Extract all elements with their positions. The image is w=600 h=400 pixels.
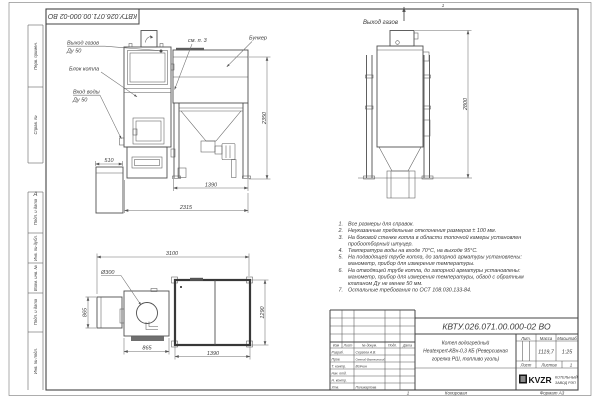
side-chimney — [390, 31, 414, 47]
frame-label-perv-primen: Перв. примен. — [33, 42, 38, 70]
boiler-chimney-stub — [141, 31, 157, 48]
note-text: Неуказанные предельные отклонения размер… — [348, 228, 496, 234]
note-text: манометр, прибор для измерения температу… — [348, 274, 524, 280]
conveyor-outlet — [201, 141, 215, 152]
note-num: 2. — [338, 228, 344, 234]
tb-name-line2: Heatexpert-КВн-0,3 КБ (Реверсивная — [423, 349, 508, 355]
plan-view: 3100 865 Ø300 865 1390 — [83, 251, 269, 360]
dim-1290: 1290 — [260, 305, 266, 318]
grate-strip — [131, 337, 164, 342]
tb-role: Нач. отд. — [332, 372, 347, 376]
zone-marker-a: А — [32, 192, 37, 198]
technical-notes: 1. Все размеры для справок. 2. Неуказанн… — [338, 222, 525, 294]
format-label: Формат А3 — [540, 391, 565, 396]
tb-person: Всячин — [356, 365, 367, 369]
note-num: 7. — [339, 288, 344, 294]
note-text: манометр, прибор для измерения температу… — [348, 261, 475, 267]
hopper-plan — [175, 280, 250, 345]
dim-865-bottom: 865 — [142, 346, 152, 352]
hopper-container — [173, 50, 248, 103]
note-text: На подводящей трубе котла, до запорной а… — [348, 254, 522, 261]
frame-label-podp-data-2: Подп. и дата — [33, 298, 38, 325]
label-see-note-3: см. п. 3 — [188, 38, 208, 44]
note-text: На отводящей трубе котла, до запорной ар… — [348, 267, 521, 274]
tb-role: Разраб. — [332, 351, 344, 355]
tb-person: Поликарпова — [356, 386, 377, 390]
side-view: Выход газов 2800 — [358, 7, 472, 198]
tb-name-line3: горелка РШ, топливо уголь) — [432, 357, 500, 363]
boiler-bottom-box — [127, 147, 167, 178]
dim-865-left: 865 — [83, 307, 89, 317]
boiler-upper-door — [128, 51, 168, 85]
tb-scale-value: 1:25 — [562, 350, 573, 356]
engineering-drawing: Перв. примен. Справ. № Подп. и дата Инв.… — [0, 0, 600, 400]
tb-col-podp: Подп. — [388, 343, 397, 347]
note-num: 1. — [339, 222, 344, 228]
note-text: клапаном Ду не менее 50 мм. — [348, 281, 423, 287]
tb-person: Омелой-Вережинский — [356, 358, 386, 362]
tb-sheets-label: Листов — [540, 362, 557, 367]
label-gas-outlet: Выход газов — [67, 41, 99, 47]
label-water-inlet: Вход воды — [73, 90, 100, 96]
damper-arrow — [150, 35, 153, 38]
furnace-door — [133, 118, 164, 144]
frame-label-vzam-inv: Взам. инв. № — [33, 265, 38, 291]
dim-2800: 2800 — [463, 97, 469, 111]
dim-510: 510 — [104, 158, 114, 164]
conveyor-motor — [222, 144, 235, 160]
water-inlet-stub — [120, 138, 125, 145]
note-text: Все размеры для справок. — [348, 222, 414, 228]
label-boiler-block: Блок котла — [69, 67, 99, 73]
frame-label-podp-data-1: Подп. и дата — [33, 198, 38, 225]
tb-person: Сергеев А.В. — [356, 351, 377, 355]
tb-org-line1: КОТЕЛЬНЫЙ — [555, 376, 578, 380]
tb-org-line2: ЗАВОД РЭП — [555, 381, 576, 385]
tb-mass-label: Масса — [540, 336, 553, 341]
title-block: КВТУ.026.071.00.000-02 ВО Котел водогрей… — [330, 310, 578, 390]
tb-role: Утв. — [332, 386, 340, 390]
tb-col-doc: № докум. — [362, 343, 377, 347]
tb-mass-value: 1119,7 — [538, 350, 555, 356]
dim-2350: 2350 — [262, 111, 268, 125]
note-text: Остальные требования по ОСТ 108.030.133-… — [348, 288, 471, 294]
note-num: 6. — [339, 268, 344, 274]
tb-sheet-label: Лист — [520, 362, 532, 367]
tb-col-data: Дата — [402, 343, 412, 347]
note-num: 5. — [339, 255, 344, 261]
label-water-inlet-dn: Ду 50 — [72, 98, 88, 104]
note-text: Температура воды на входе 70°С, на выход… — [348, 248, 478, 254]
frame-label-inv-dubl: Инв. № дубл. — [33, 235, 38, 261]
label-gas-outlet-dn: Ду 50 — [66, 49, 82, 55]
frame-label-inv-podl: Инв. № подл. — [33, 348, 38, 374]
kvzr-logo-text: KVZR — [529, 375, 552, 385]
zone-marker-top: 1 — [442, 3, 445, 8]
dim-1390-front: 1390 — [205, 183, 218, 189]
tb-role: Пров. — [332, 358, 341, 362]
tb-col-list: Лист — [343, 343, 353, 347]
tb-designation: КВТУ.026.071.00.000-02 ВО — [442, 322, 551, 332]
tb-scale-label: Масштаб — [557, 336, 577, 341]
copied-label: Копировал — [445, 391, 468, 396]
frame-label-sprav-no: Справ. № — [33, 115, 38, 134]
drawing-sheet: Перв. примен. Справ. № Подп. и дата Инв.… — [0, 0, 600, 400]
tb-col-izm: Изм — [333, 343, 340, 347]
zone-marker-bottom: 1 — [407, 390, 410, 395]
front-view: Выход газов Ду 50 Блок котла Вход воды Д… — [66, 31, 271, 214]
dim-3100: 3100 — [166, 251, 179, 257]
tb-name-line1: Котел водогрейный — [442, 340, 490, 347]
note-num: 4. — [339, 248, 344, 254]
tb-sheets-value: 1 — [570, 363, 573, 368]
ash-bin — [96, 167, 123, 213]
tb-role: Т. контр. — [332, 365, 347, 369]
tb-role: Н. контр. — [332, 379, 347, 383]
hole-300 — [137, 303, 158, 324]
label-hopper: Бункер — [249, 36, 267, 42]
note-num: 3. — [339, 235, 344, 241]
dim-1390-plan: 1390 — [207, 351, 220, 357]
note-text: На боковой стенке котла в области топочн… — [348, 234, 521, 241]
gas-outlet-point — [160, 50, 163, 53]
tb-lit-label: Лит. — [520, 336, 531, 341]
hopper-vent — [190, 278, 203, 281]
note-text: пробоотборный штуцер. — [348, 240, 413, 247]
label-gas-outlet-side: Выход газов — [363, 20, 398, 26]
side-body — [377, 46, 423, 147]
dim-2315: 2315 — [179, 205, 193, 211]
label-diameter-300: Ø300 — [100, 270, 115, 276]
top-stamp-designation: КВТУ.026.071.00.000-02 ВО — [47, 12, 137, 19]
